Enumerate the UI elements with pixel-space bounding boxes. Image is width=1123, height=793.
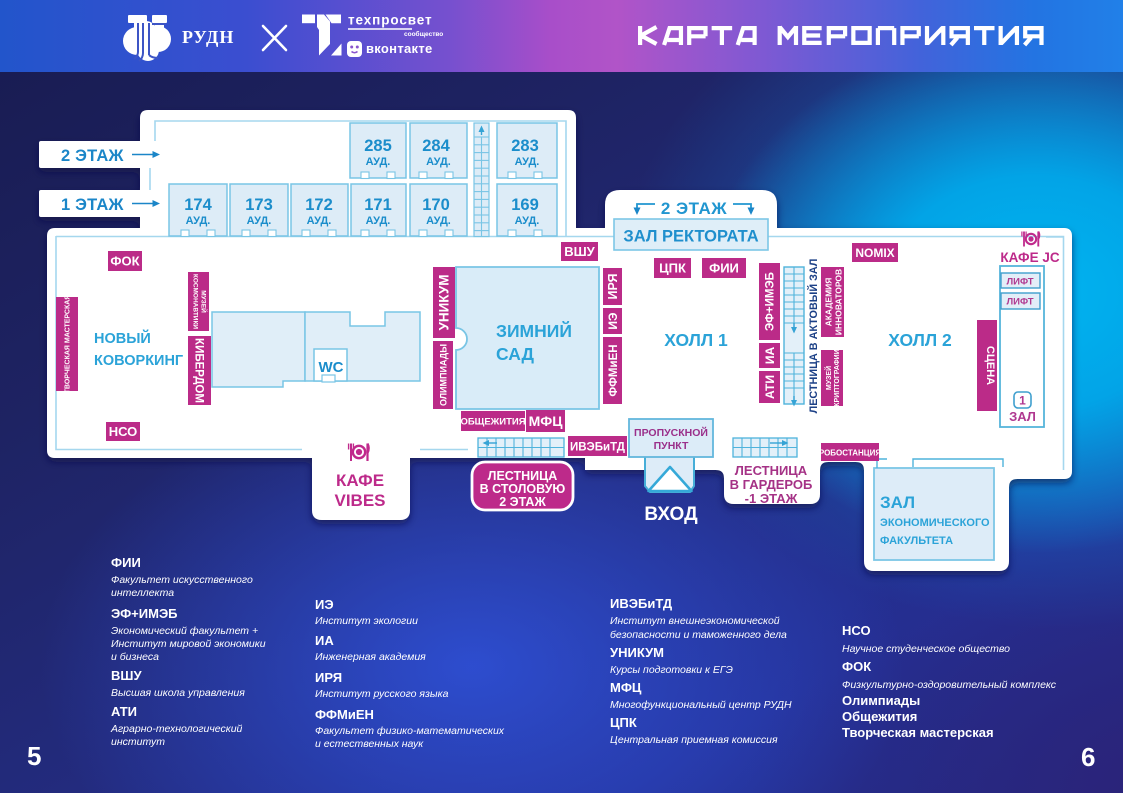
svg-text:институт: институт [111, 736, 165, 748]
svg-text:Экономический факультет +: Экономический факультет + [111, 625, 258, 637]
svg-text:ФОК: ФОК [110, 254, 139, 269]
svg-text:ЗАЛ РЕКТОРАТА: ЗАЛ РЕКТОРАТА [623, 228, 758, 246]
svg-text:ЭКОНОМИЧЕСКОГО: ЭКОНОМИЧЕСКОГО [880, 517, 990, 529]
svg-text:РОБОСТАНЦИЯ: РОБОСТАНЦИЯ [819, 449, 882, 458]
svg-text:ТВОРЧЕСКАЯ МАСТЕРСКАЯ: ТВОРЧЕСКАЯ МАСТЕРСКАЯ [65, 295, 72, 394]
svg-text:КИБЕРДОМ: КИБЕРДОМ [193, 338, 205, 403]
svg-text:Институт русского языка: Институт русского языка [315, 688, 449, 700]
svg-text:УНИКУМ: УНИКУМ [437, 274, 452, 330]
svg-text:НСО: НСО [109, 424, 138, 439]
svg-text:ИВЭБиТД: ИВЭБиТД [610, 596, 673, 611]
svg-text:ЭФ+ИМЭБ: ЭФ+ИМЭБ [111, 606, 178, 621]
svg-text:ОЛИМПИАДЫ: ОЛИМПИАДЫ [439, 344, 449, 406]
svg-text:АУД.: АУД. [426, 215, 451, 227]
svg-text:и бизнеса: и бизнеса [111, 651, 159, 663]
svg-text:ЛЕСТНИЦА В АКТОВЫЙ ЗАЛ: ЛЕСТНИЦА В АКТОВЫЙ ЗАЛ [807, 259, 820, 414]
svg-text:ЛИФТ: ЛИФТ [1006, 277, 1033, 288]
svg-text:Институт мировой экономики: Институт мировой экономики [111, 638, 266, 650]
svg-text:ИА: ИА [315, 633, 334, 648]
svg-text:ПРОПУСКНОЙ: ПРОПУСКНОЙ [634, 426, 708, 439]
svg-text:ХОЛЛ 1: ХОЛЛ 1 [664, 330, 728, 350]
svg-text:НСО: НСО [842, 623, 871, 638]
svg-text:ВШУ: ВШУ [111, 668, 142, 683]
svg-text:ФОК: ФОК [842, 659, 871, 674]
svg-text:СЦЕНА: СЦЕНА [984, 346, 996, 385]
svg-text:ИРЯ: ИРЯ [606, 273, 620, 299]
svg-text:ОБЩЕЖИТИЯ: ОБЩЕЖИТИЯ [460, 417, 525, 428]
svg-text:ЛЕСТНИЦА: ЛЕСТНИЦА [488, 469, 558, 483]
svg-text:2 ЭТАЖ: 2 ЭТАЖ [61, 147, 124, 165]
svg-text:ЗИМНИЙ: ЗИМНИЙ [496, 320, 572, 341]
svg-text:ИННОВАТОРОВ: ИННОВАТОРОВ [834, 269, 844, 335]
svg-text:ИЭ: ИЭ [315, 597, 334, 612]
svg-text:КОСМОНАВТИКИ: КОСМОНАВТИКИ [192, 274, 199, 330]
svg-text:171: 171 [364, 196, 392, 214]
svg-text:Факультет искусственного: Факультет искусственного [111, 574, 253, 586]
svg-text:интеллекта: интеллекта [111, 587, 174, 599]
svg-text:и естественных наук: и естественных наук [315, 738, 424, 750]
svg-text:173: 173 [245, 196, 273, 214]
svg-text:ЗАЛ: ЗАЛ [1009, 409, 1036, 424]
svg-text:Аграрно-технологический: Аграрно-технологический [110, 723, 243, 735]
svg-text:170: 170 [422, 196, 450, 214]
svg-text:САД: САД [496, 344, 534, 364]
svg-text:АУД.: АУД. [366, 215, 391, 227]
svg-text:1: 1 [1019, 394, 1026, 408]
svg-text:ВШУ: ВШУ [564, 244, 595, 259]
svg-text:172: 172 [305, 196, 333, 214]
svg-text:Центральная приемная комиссия: Центральная приемная комиссия [610, 734, 778, 746]
svg-text:WC: WC [319, 359, 344, 376]
svg-text:КАФЕ: КАФЕ [336, 471, 384, 490]
svg-text:285: 285 [364, 137, 392, 155]
svg-text:169: 169 [511, 196, 539, 214]
svg-text:МУЗЕЙ: МУЗЕЙ [200, 290, 209, 313]
svg-text:ФФМиЕН: ФФМиЕН [608, 344, 620, 396]
svg-text:Институт экологии: Институт экологии [315, 615, 418, 627]
svg-text:Инженерная академия: Инженерная академия [315, 651, 426, 663]
svg-text:АУД.: АУД. [515, 215, 540, 227]
svg-text:284: 284 [422, 137, 450, 155]
svg-text:Общежития: Общежития [842, 709, 917, 724]
svg-text:В СТОЛОВУЮ: В СТОЛОВУЮ [480, 482, 566, 496]
svg-text:МУЗЕЙ: МУЗЕЙ [824, 366, 833, 390]
svg-text:АУД.: АУД. [307, 215, 332, 227]
svg-text:АУД.: АУД. [186, 215, 211, 227]
svg-text:Факультет физико-математически: Факультет физико-математических [315, 725, 505, 737]
svg-text:Творческая мастерская: Творческая мастерская [842, 725, 994, 740]
svg-text:АТИ: АТИ [111, 704, 137, 719]
svg-text:АУД.: АУД. [247, 215, 272, 227]
svg-text:безопасности и таможенного дел: безопасности и таможенного дела [610, 629, 787, 641]
svg-text:ЛЕСТНИЦА: ЛЕСТНИЦА [735, 463, 808, 478]
svg-text:NOMIX: NOMIX [855, 246, 894, 260]
svg-text:ЗАЛ: ЗАЛ [880, 493, 915, 512]
svg-text:ПУНКТ: ПУНКТ [654, 440, 689, 452]
svg-text:АКАДЕМИЯ: АКАДЕМИЯ [824, 278, 834, 327]
svg-text:АУД.: АУД. [426, 156, 451, 168]
svg-text:Высшая школа управления: Высшая школа управления [111, 687, 245, 699]
svg-text:1 ЭТАЖ: 1 ЭТАЖ [61, 196, 124, 214]
svg-text:-1 ЭТАЖ: -1 ЭТАЖ [745, 491, 798, 506]
svg-text:ВХОД: ВХОД [644, 504, 698, 525]
svg-text:Физкультурно-оздоровительный к: Физкультурно-оздоровительный комплекс [842, 679, 1057, 691]
svg-text:КОВОРКИНГ: КОВОРКИНГ [94, 353, 183, 369]
svg-text:2 ЭТАЖ: 2 ЭТАЖ [499, 495, 546, 509]
svg-text:ИВЭБиТД: ИВЭБиТД [570, 442, 625, 454]
svg-text:АУД.: АУД. [366, 156, 391, 168]
svg-text:КАФЕ JC: КАФЕ JC [1000, 250, 1059, 265]
svg-text:КРИПТОГРАФИИ: КРИПТОГРАФИИ [834, 349, 841, 407]
svg-text:6: 6 [1081, 742, 1095, 772]
svg-text:ФИИ: ФИИ [709, 261, 739, 276]
svg-text:АУД.: АУД. [515, 156, 540, 168]
svg-text:Институт внешнеэкономической: Институт внешнеэкономической [610, 615, 780, 627]
svg-text:Научное студенческое общество: Научное студенческое общество [842, 643, 1010, 655]
svg-text:Олимпиады: Олимпиады [842, 693, 920, 708]
svg-text:ИА: ИА [763, 347, 777, 365]
svg-text:283: 283 [511, 137, 539, 155]
svg-text:ЦПК: ЦПК [610, 715, 637, 730]
svg-text:ЛИФТ: ЛИФТ [1006, 297, 1033, 308]
svg-text:Многофункциональный центр РУДН: Многофункциональный центр РУДН [610, 699, 792, 711]
svg-text:НОВЫЙ: НОВЫЙ [94, 329, 151, 347]
svg-text:Курсы подготовки к ЕГЭ: Курсы подготовки к ЕГЭ [610, 664, 733, 676]
svg-text:ХОЛЛ 2: ХОЛЛ 2 [888, 330, 952, 350]
svg-text:МФЦ: МФЦ [610, 680, 642, 695]
svg-text:ЭФ+ИМЭБ: ЭФ+ИМЭБ [765, 272, 777, 331]
svg-text:АТИ: АТИ [763, 375, 777, 399]
svg-text:В ГАРДЕРОБ: В ГАРДЕРОБ [730, 477, 813, 492]
svg-text:2 ЭТАЖ: 2 ЭТАЖ [661, 199, 727, 218]
svg-text:МФЦ: МФЦ [529, 413, 564, 429]
svg-text:ЦПК: ЦПК [659, 261, 686, 276]
svg-text:174: 174 [184, 196, 212, 214]
svg-text:УНИКУМ: УНИКУМ [610, 645, 664, 660]
svg-text:ФИИ: ФИИ [111, 555, 141, 570]
svg-text:5: 5 [27, 741, 41, 771]
svg-text:ИЭ: ИЭ [606, 312, 620, 330]
svg-text:ФФМиЕН: ФФМиЕН [315, 707, 374, 722]
svg-text:VIBES: VIBES [334, 491, 385, 510]
svg-text:ИРЯ: ИРЯ [315, 670, 342, 685]
